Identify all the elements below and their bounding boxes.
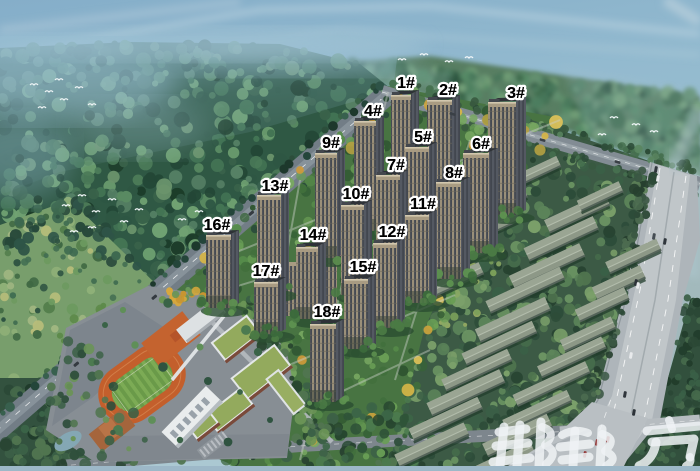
svg-text:7#: 7# <box>387 157 405 174</box>
svg-text:9#: 9# <box>322 135 340 152</box>
svg-text:13#: 13# <box>262 178 289 195</box>
svg-text:2#: 2# <box>439 82 457 99</box>
svg-text:10#: 10# <box>343 186 370 203</box>
svg-text:1#: 1# <box>397 75 415 92</box>
svg-text:12#: 12# <box>379 224 406 241</box>
svg-text:5#: 5# <box>414 129 432 146</box>
svg-text:18#: 18# <box>314 304 341 321</box>
svg-text:3#: 3# <box>507 85 525 102</box>
svg-text:11#: 11# <box>410 196 436 213</box>
svg-text:17#: 17# <box>253 263 280 280</box>
svg-text:16#: 16# <box>204 217 231 234</box>
svg-text:14#: 14# <box>300 227 327 244</box>
svg-text:15#: 15# <box>350 259 377 276</box>
svg-text:8#: 8# <box>445 165 463 182</box>
svg-text:6#: 6# <box>472 136 490 153</box>
svg-text:4#: 4# <box>364 103 382 120</box>
